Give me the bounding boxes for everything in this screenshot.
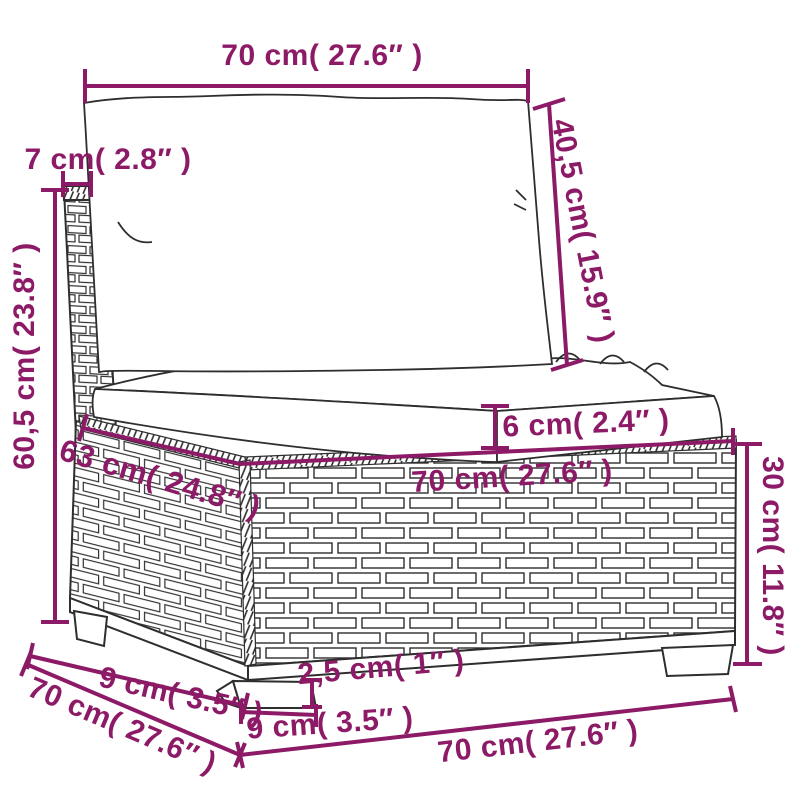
- dim-label-seat-cushion-thickness: 6 cm( 2.4″ ): [502, 403, 670, 444]
- back-cushion: [84, 95, 552, 372]
- dim-label-overall-height: 60,5 cm( 23.8″ ): [8, 242, 42, 470]
- front-right-leg: [662, 645, 733, 676]
- dim-label-back-cushion-width: 70 cm( 27.6″ ): [221, 39, 422, 73]
- furniture-dimension-diagram: 70 cm( 27.6″ ) 7 cm( 2.8″ ) 40,5 cm( 15.…: [0, 0, 800, 800]
- dim-label-base-height: 30 cm( 11.8″ ): [755, 456, 789, 656]
- back-left-leg: [74, 611, 107, 646]
- dim-label-back-panel-thickness: 7 cm( 2.8″ ): [24, 143, 191, 177]
- dim-overall-height: [41, 190, 69, 622]
- sofa-structure: [63, 95, 736, 708]
